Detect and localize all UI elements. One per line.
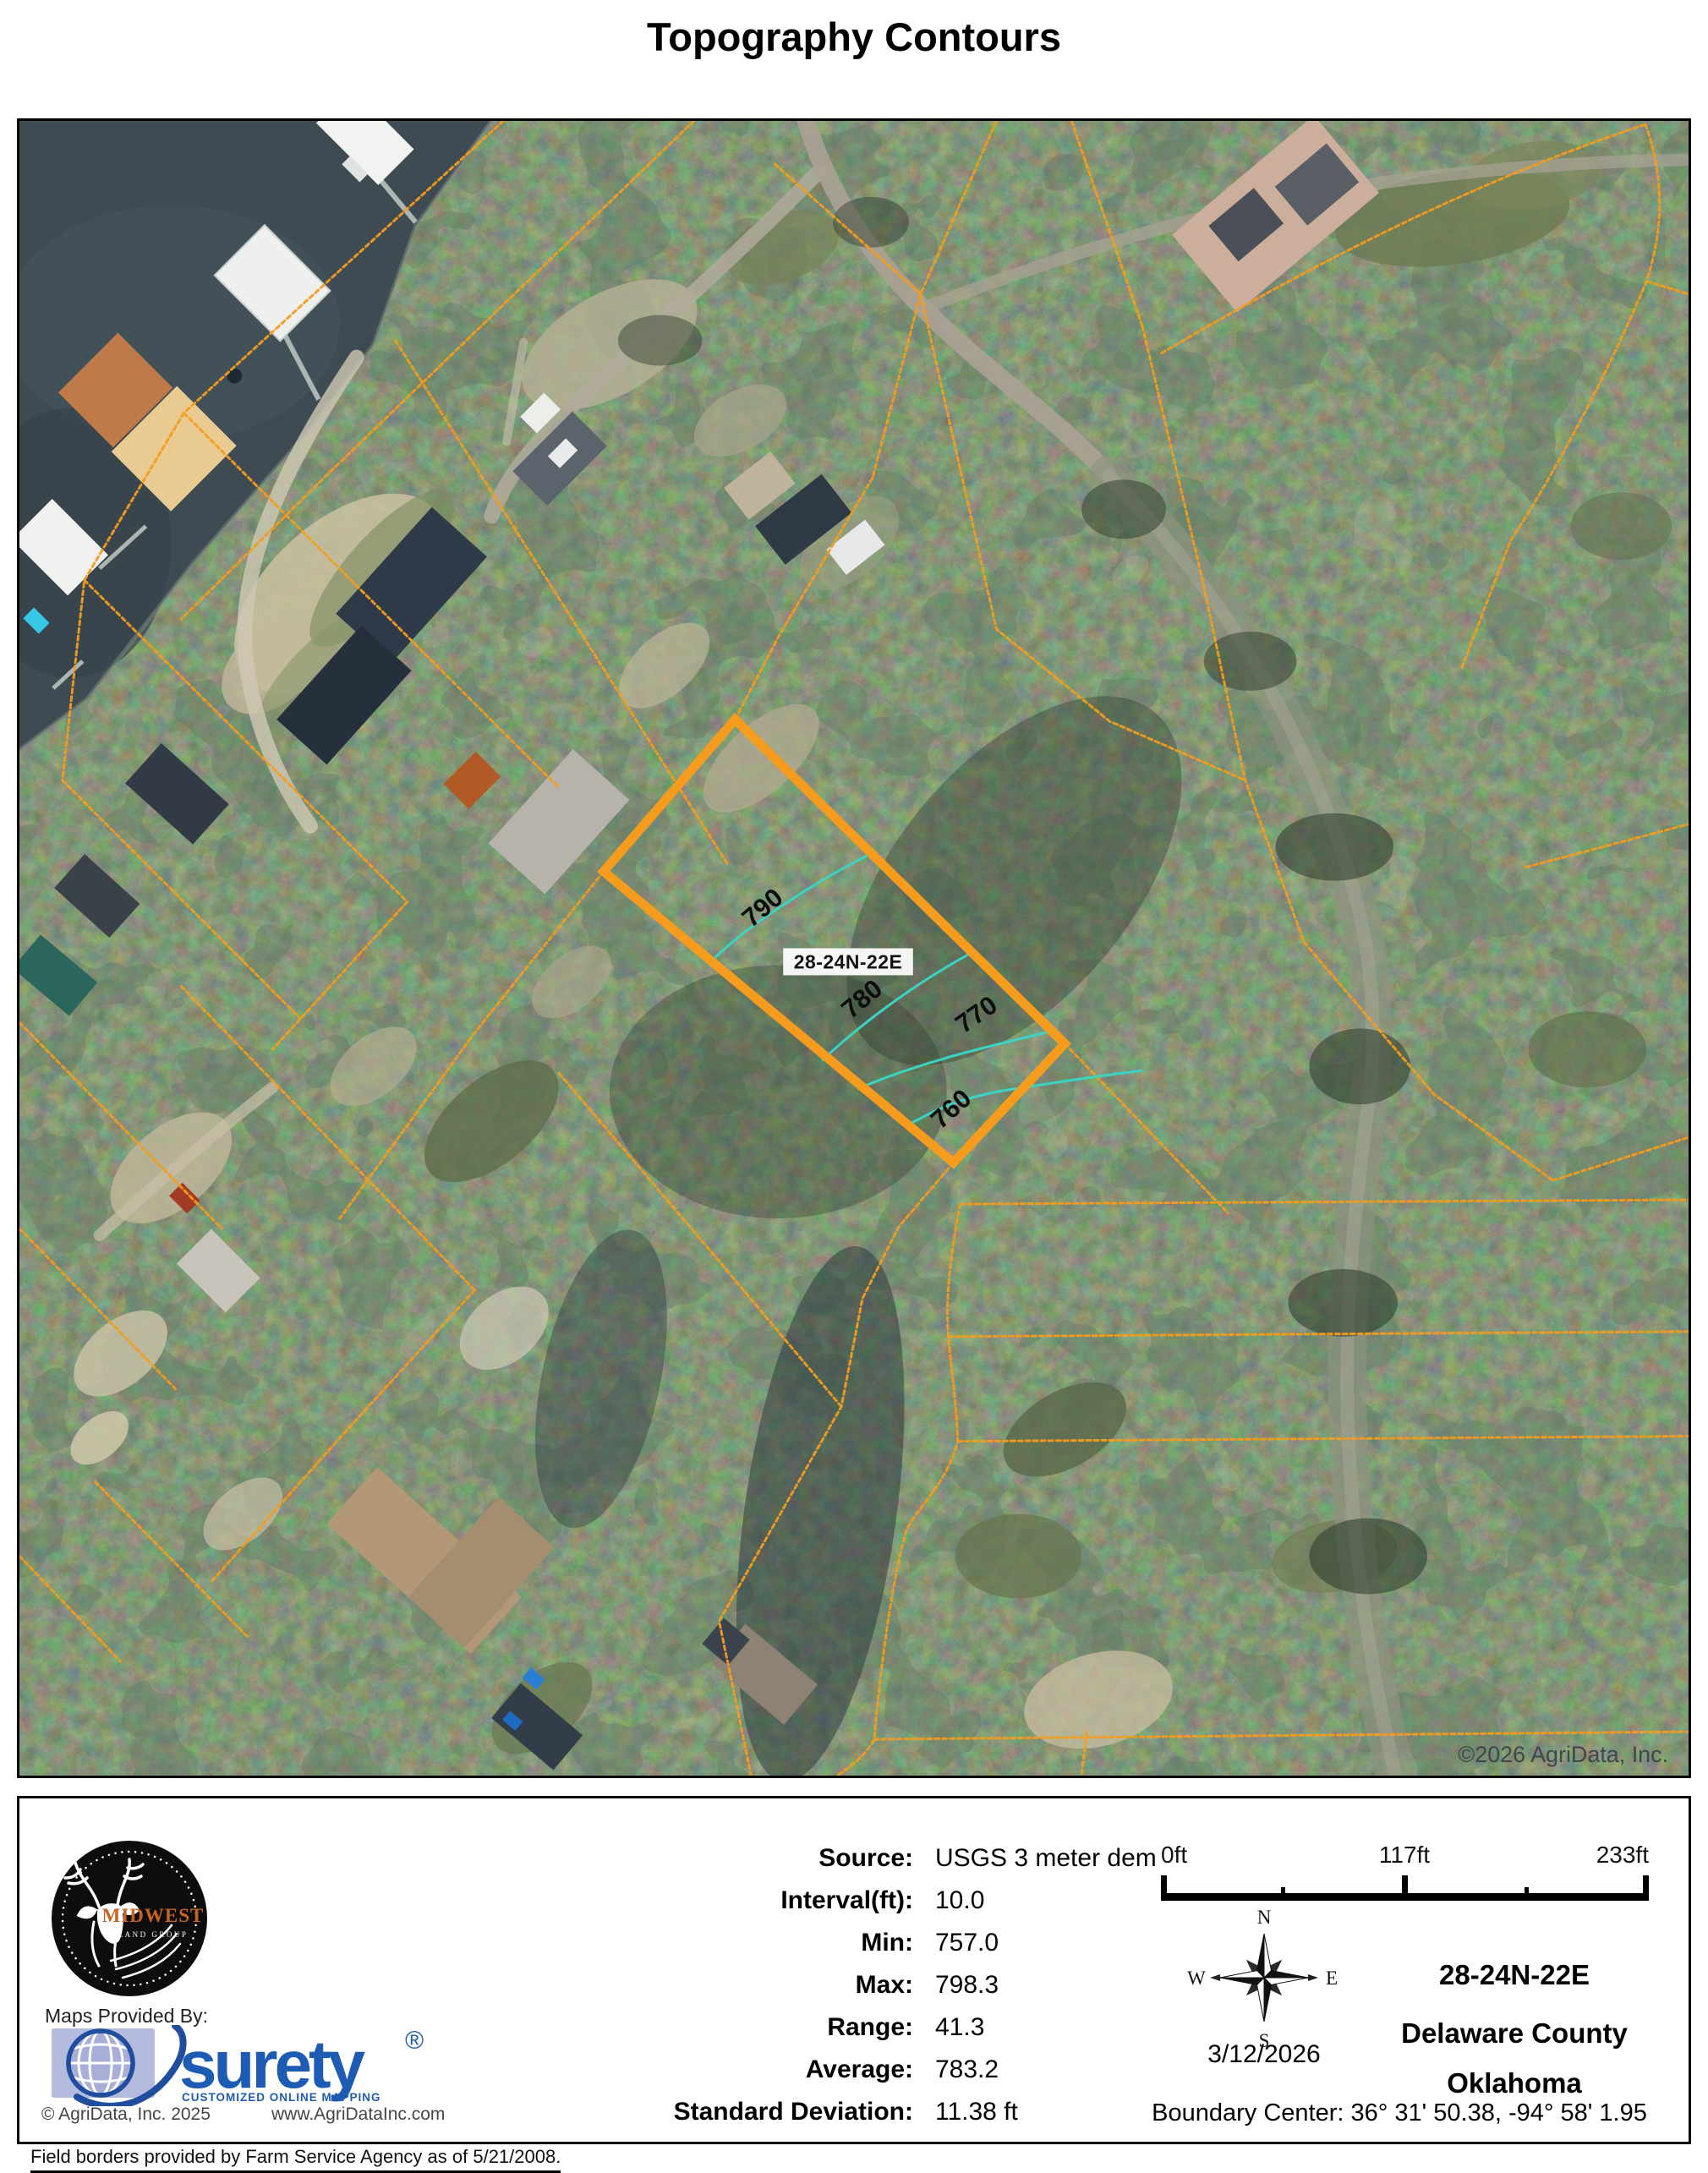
stat-row-source: Source:USGS 3 meter dem <box>307 1844 1152 1876</box>
compass-w: W <box>1187 1968 1206 1989</box>
midwest-land-group-logo: MIDWEST LAND GROUP <box>50 1839 209 1998</box>
scale-label-0: 0ft <box>1161 1842 1187 1868</box>
stat-row-average: Average:783.2 <box>307 2055 1152 2088</box>
aerial-map: 790 780 770 760 28-24N-22E ©2026 AgriDat… <box>19 121 1689 1776</box>
maps-provided-by-label: Maps Provided By: <box>45 2005 208 2028</box>
location-county: Delaware County <box>1372 2017 1656 2050</box>
parcel-label-text: 28-24N-22E <box>794 950 903 972</box>
scale-label-max: 233ft <box>1596 1842 1649 1868</box>
stat-row-min: Min:757.0 <box>307 1929 1152 1961</box>
footer-panel: MIDWEST LAND GROUP Maps Provided By: <box>17 1796 1691 2144</box>
stat-row-range: Range:41.3 <box>307 2013 1152 2045</box>
map-date: 3/12/2026 <box>1180 2040 1349 2069</box>
midwest-logo-sub: LAND GROUP <box>118 1930 189 1939</box>
midwest-logo-name: MIDWEST <box>102 1905 205 1926</box>
parcel-label: 28-24N-22E <box>783 949 913 976</box>
field-borders-note: Field borders provided by Farm Service A… <box>30 2146 561 2173</box>
stat-row-max: Max:798.3 <box>307 1971 1152 2003</box>
compass-n: N <box>1257 1907 1272 1928</box>
map-watermark: ©2026 AgriData, Inc. <box>1458 1742 1668 1767</box>
stat-row-interval: Interval(ft):10.0 <box>307 1886 1152 1918</box>
page: Topography Contours <box>0 0 1708 2165</box>
map-frame: 790 780 770 760 28-24N-22E ©2026 AgriDat… <box>17 118 1691 1778</box>
location-state: Oklahoma <box>1372 2067 1656 2099</box>
location-trs: 28-24N-22E <box>1372 1959 1656 1991</box>
boundary-center: Boundary Center: 36° 31' 50.38, -94° 58'… <box>1146 2099 1653 2127</box>
stat-row-stddev: Standard Deviation:11.38 ft <box>307 2098 1152 2130</box>
compass-e: E <box>1326 1968 1338 1989</box>
compass-rose: N S W E <box>1180 1902 1349 2054</box>
page-title: Topography Contours <box>0 14 1708 60</box>
scale-label-mid: 117ft <box>1379 1842 1430 1868</box>
agridata-copyright: © AgriData, Inc. 2025 <box>41 2105 211 2125</box>
